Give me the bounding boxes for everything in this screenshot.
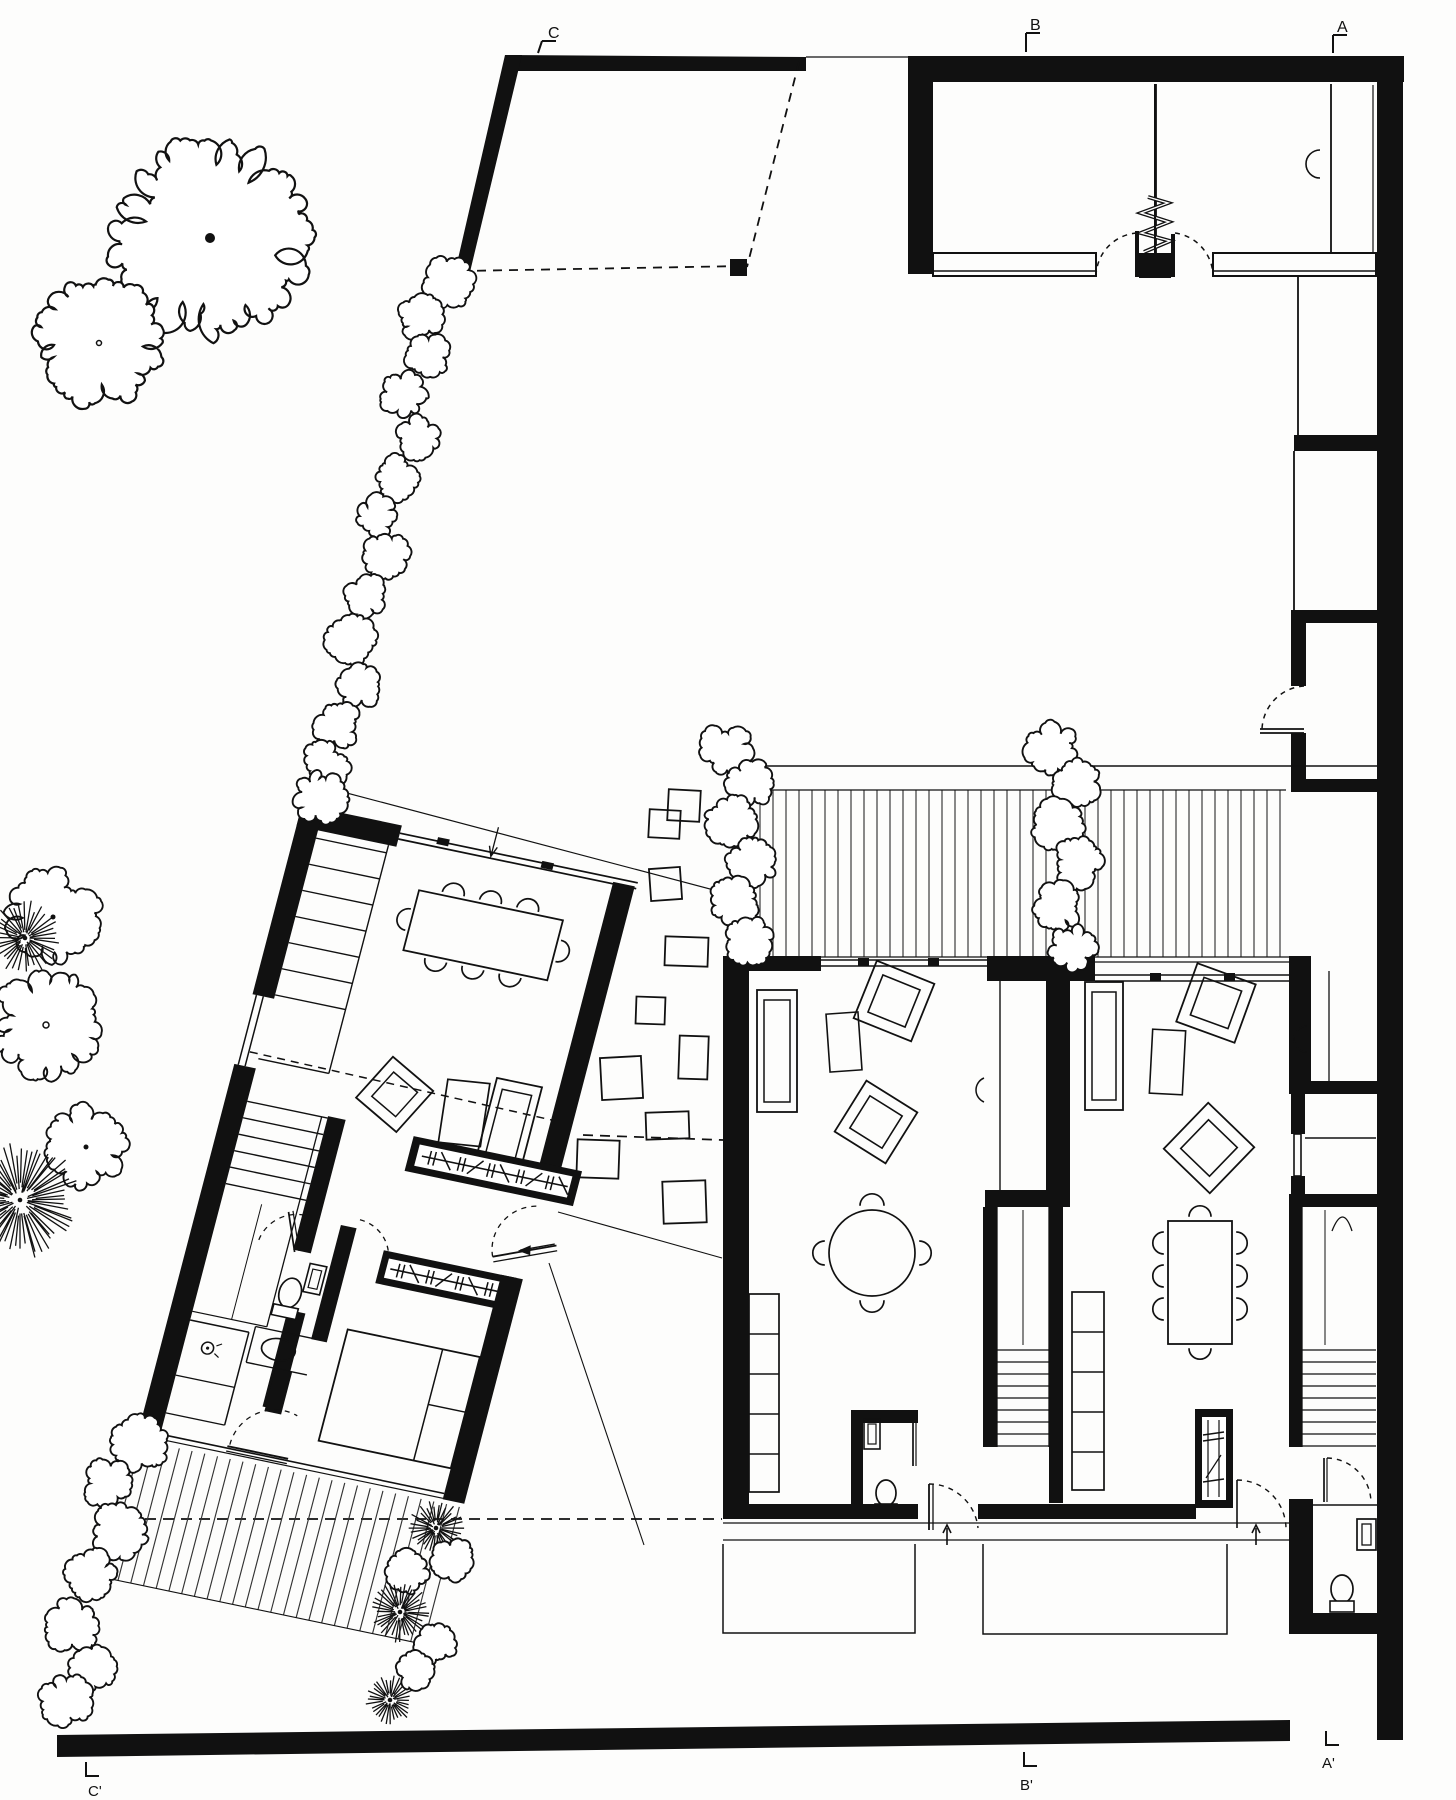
svg-text:C: C <box>548 25 560 42</box>
svg-text:B: B <box>1030 17 1041 34</box>
svg-text:A': A' <box>1322 1755 1335 1772</box>
svg-text:A: A <box>1337 19 1348 36</box>
svg-text:B': B' <box>1020 1777 1033 1794</box>
svg-text:C': C' <box>88 1783 102 1800</box>
